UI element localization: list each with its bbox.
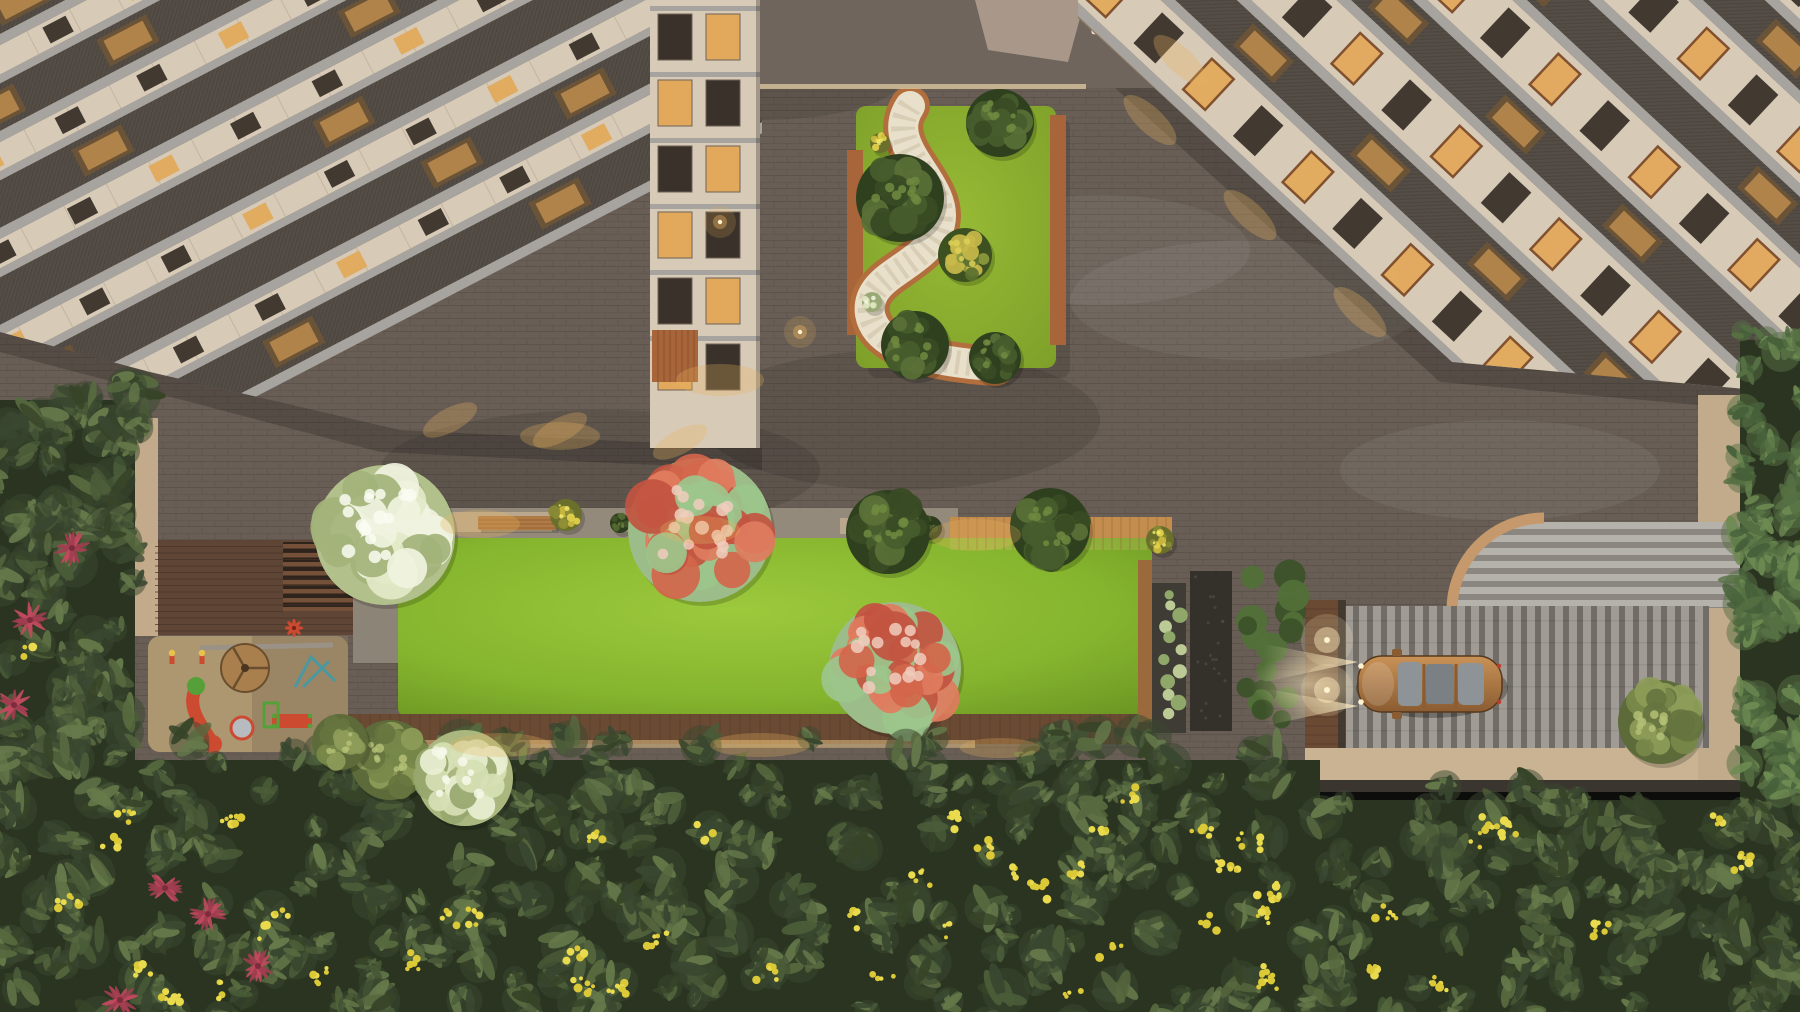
circle-detail	[872, 504, 880, 512]
slide-top	[187, 677, 205, 695]
circle-detail	[677, 491, 689, 503]
window-dark	[658, 14, 692, 60]
circle-detail	[1043, 540, 1049, 546]
planter-plant	[1173, 664, 1187, 678]
circle-detail	[365, 489, 375, 499]
circle-detail	[911, 194, 920, 203]
circle-detail	[911, 177, 920, 186]
circle-detail	[877, 139, 881, 143]
driveway-stripe	[1527, 606, 1535, 748]
driveway-stripe	[1555, 606, 1563, 748]
circle-detail	[871, 194, 880, 203]
pebble	[1204, 717, 1207, 720]
car-rear-window	[1458, 663, 1484, 705]
circle-detail	[893, 342, 899, 348]
circle-detail	[870, 303, 876, 309]
circle-detail	[896, 529, 903, 536]
window-lit	[658, 80, 692, 126]
hedge-shrub	[1241, 566, 1264, 589]
pebble	[1213, 667, 1216, 670]
circle-detail	[953, 239, 960, 246]
car-mirror	[1392, 712, 1402, 719]
circle-detail	[978, 253, 990, 265]
circle-detail	[969, 260, 976, 267]
circle-detail	[1032, 512, 1041, 521]
pebble	[1218, 715, 1221, 718]
driveway-stripe	[1549, 606, 1555, 748]
planter-plant	[1172, 607, 1187, 622]
balance-beam	[200, 645, 333, 648]
window-lit	[706, 14, 740, 60]
planter-plant	[1163, 631, 1175, 643]
driveway-stripe	[1513, 606, 1521, 748]
crawl-cylinder	[231, 717, 253, 739]
circle-detail	[932, 525, 934, 527]
merry-hub	[241, 664, 249, 672]
circle-detail	[1001, 352, 1008, 359]
circle-detail	[866, 667, 876, 677]
planter-plant	[1163, 708, 1174, 719]
car-taillight	[1497, 664, 1501, 668]
pinwheel-hub	[292, 626, 296, 630]
circle-detail	[1162, 543, 1166, 547]
circle-detail	[553, 512, 561, 520]
ellipse-detail	[663, 904, 668, 920]
circle-detail	[987, 100, 993, 106]
circle-detail	[1022, 521, 1046, 545]
circle-detail	[375, 489, 386, 500]
car-taillight	[1497, 700, 1501, 704]
circle-detail	[902, 670, 915, 683]
circle-detail	[955, 247, 962, 254]
circle-detail	[693, 499, 704, 510]
circle-detail	[973, 357, 985, 369]
circle-detail	[1061, 535, 1071, 545]
driveway-stripe	[1605, 606, 1611, 748]
circle-detail	[373, 510, 387, 524]
circle-detail	[865, 300, 868, 303]
pebble	[1214, 606, 1217, 609]
circle-detail	[948, 240, 953, 245]
window-lit	[658, 212, 692, 258]
forest-frond	[1484, 847, 1513, 876]
window-lit	[706, 278, 740, 324]
circle-detail	[905, 625, 916, 636]
child-figure-body	[200, 656, 205, 664]
circle-detail	[875, 535, 882, 542]
circle-detail	[398, 489, 410, 501]
pebble	[1196, 660, 1199, 663]
circle-detail	[889, 205, 918, 234]
circle-detail	[622, 523, 624, 525]
circle-detail	[1009, 124, 1016, 131]
window-dark	[658, 278, 692, 324]
circle-detail	[658, 549, 669, 560]
pebble	[1215, 658, 1218, 661]
circle-detail	[567, 514, 575, 522]
pebble	[1211, 658, 1214, 661]
circle-detail	[965, 267, 979, 281]
circle-detail	[900, 637, 911, 648]
pebble	[1204, 662, 1207, 665]
circle-detail	[885, 183, 894, 192]
paving-mottle	[1340, 420, 1660, 520]
driveway-stripe	[1507, 606, 1513, 748]
circle-detail	[892, 317, 907, 332]
pebble	[1209, 654, 1212, 657]
circle-detail	[889, 673, 901, 685]
hedge-shrub	[1278, 580, 1310, 612]
circle-detail	[716, 547, 728, 559]
pebble	[1200, 709, 1203, 712]
circle-detail	[1003, 338, 1015, 350]
planter-plant	[1165, 600, 1175, 610]
circle-detail	[613, 525, 620, 532]
circle-detail	[911, 639, 920, 648]
driveway-stripe	[1597, 606, 1605, 748]
circle-detail	[560, 515, 563, 518]
car-windshield	[1398, 662, 1422, 706]
structure-post	[308, 724, 313, 729]
circle-detail	[983, 361, 990, 368]
pergola-slat	[283, 607, 353, 612]
circle-detail	[870, 157, 895, 182]
circle-detail	[983, 348, 987, 352]
circle-detail	[1011, 113, 1016, 118]
planter-plant	[1176, 644, 1187, 655]
circle-detail	[1054, 539, 1061, 546]
circle-detail	[369, 551, 382, 564]
circle-detail	[898, 185, 906, 193]
car-roof-glass	[1426, 664, 1454, 704]
circle-detail	[611, 516, 618, 523]
circle-detail	[621, 525, 624, 528]
circle-detail	[1153, 541, 1156, 544]
circle-detail	[342, 544, 356, 558]
circle-detail	[900, 356, 923, 379]
driveway-stripe	[1535, 606, 1541, 748]
threshold-light-line	[756, 84, 1086, 89]
pergola-slat	[283, 598, 353, 603]
driveway-stripe	[1577, 606, 1583, 748]
circle-detail	[559, 504, 561, 506]
circle-detail	[923, 342, 931, 350]
car-headlight	[1358, 699, 1364, 705]
pebble	[1212, 595, 1215, 598]
forest-frond	[1557, 974, 1584, 1001]
circle-detail	[1166, 542, 1172, 548]
circle-detail	[985, 340, 991, 346]
structure-post	[272, 714, 277, 719]
ellipse-detail	[1677, 863, 1697, 869]
circle-detail	[863, 681, 876, 694]
window-dark	[706, 80, 740, 126]
car-mirror	[1392, 649, 1402, 656]
pebble	[1224, 679, 1227, 682]
circle-detail	[872, 637, 884, 649]
planter-plant	[1160, 674, 1175, 689]
circle-detail	[909, 185, 917, 193]
driveway-stripe	[1569, 606, 1577, 748]
driveway-stripe	[1611, 606, 1619, 748]
driveway-seam	[1345, 642, 1698, 644]
driveway-stripe	[1583, 606, 1591, 748]
circle-detail	[343, 506, 354, 517]
circle-detail	[1054, 515, 1075, 536]
wood-edge-strip	[1138, 560, 1152, 722]
circle-detail	[914, 653, 926, 665]
ellipse-detail	[1505, 957, 1531, 964]
circle-detail	[381, 550, 391, 560]
circle-detail	[387, 548, 427, 588]
circle-detail	[565, 506, 570, 511]
pebble	[1204, 702, 1207, 705]
circle-detail	[881, 134, 885, 138]
garden-island	[847, 89, 1066, 388]
car-hood-sheen	[1362, 662, 1394, 706]
circle-detail	[892, 354, 899, 361]
circle-detail	[1033, 507, 1039, 513]
circle-detail	[1157, 531, 1161, 535]
child-figure-head	[199, 650, 205, 656]
planter-plant	[1165, 590, 1174, 599]
circle-detail	[920, 352, 928, 360]
driveway-stripe	[1563, 606, 1569, 748]
pebble	[1217, 642, 1220, 645]
pebble-strip	[1190, 571, 1232, 731]
facade-slab	[650, 138, 760, 143]
circle-detail	[871, 296, 876, 301]
circle-detail	[618, 523, 621, 526]
pebble	[1194, 575, 1197, 578]
circle-detail	[1043, 510, 1049, 516]
window-dark	[658, 146, 692, 192]
circle-detail	[945, 254, 957, 266]
circle-detail	[734, 521, 775, 562]
facade-slab	[650, 6, 760, 11]
forest-frond	[369, 924, 402, 957]
circle-detail	[864, 530, 872, 538]
hedge-shrub	[1238, 616, 1257, 635]
circle-detail	[339, 494, 351, 506]
driveway-stripe	[1541, 606, 1549, 748]
pebble	[1209, 595, 1212, 598]
circle-detail	[898, 518, 908, 528]
child-figure-head	[169, 650, 175, 656]
render-stage	[0, 0, 1800, 1012]
driveway-stripe	[1591, 606, 1597, 748]
circle-detail	[959, 256, 964, 261]
pebble	[1207, 621, 1210, 624]
island-wood-planter	[1050, 115, 1066, 345]
hedge-shrub	[1279, 618, 1304, 643]
circle-detail	[889, 623, 902, 636]
window-lit	[706, 146, 740, 192]
circle-detail	[896, 494, 923, 521]
pebble	[1221, 620, 1224, 623]
circle-detail	[962, 244, 979, 261]
circle-detail	[716, 503, 729, 516]
circle-detail	[974, 121, 992, 139]
facade-slab	[650, 204, 760, 209]
circle-detail	[1152, 531, 1155, 534]
pebble	[1217, 672, 1220, 675]
planter-plant	[1158, 654, 1169, 665]
circle-detail	[310, 501, 362, 553]
circle-detail	[987, 112, 992, 117]
structure-post	[308, 714, 313, 719]
circle-detail	[618, 513, 625, 520]
circle-detail	[856, 627, 866, 637]
aerial-courtyard-render	[0, 0, 1800, 1012]
circle-detail	[365, 533, 376, 544]
car-headlight	[1358, 663, 1364, 669]
circle-detail	[964, 238, 970, 244]
facade-slab	[650, 270, 760, 275]
ellipse-detail	[917, 821, 948, 832]
driveway-stripe	[1521, 606, 1527, 748]
facade-slab	[650, 72, 760, 77]
driveway-seam	[1345, 620, 1698, 622]
circle-detail	[916, 322, 922, 328]
planter-plant	[1171, 695, 1187, 711]
child-figure-body	[170, 656, 175, 664]
circle-detail	[851, 640, 864, 653]
